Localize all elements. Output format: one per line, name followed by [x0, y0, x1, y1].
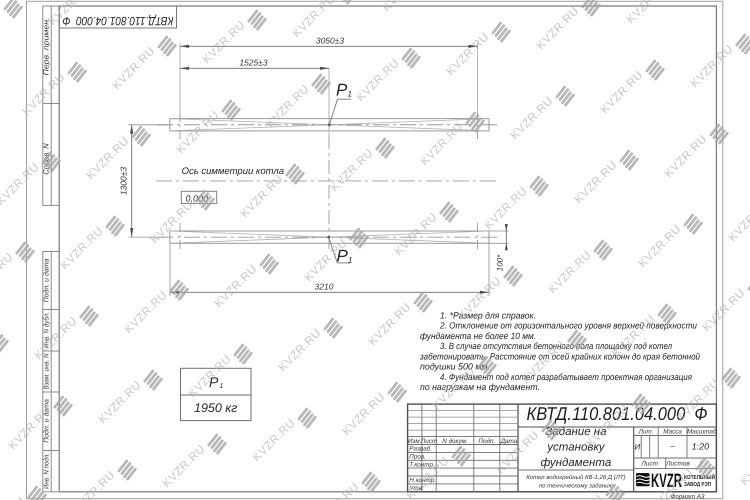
svg-text:KVZR.RU: KVZR.RU [637, 223, 684, 270]
svg-text:1: 1 [220, 383, 224, 390]
svg-text:И: И [635, 443, 641, 452]
svg-text:Масштаб: Масштаб [687, 428, 717, 435]
svg-text:фундамента: фундамента [541, 457, 612, 469]
svg-text:Изм.: Изм. [408, 438, 421, 445]
svg-text:KVZR.RU: KVZR.RU [547, 249, 594, 296]
svg-text:KVZR.RU: KVZR.RU [625, 0, 672, 26]
svg-text:по техническому заданию: по техническому заданию [539, 482, 614, 489]
svg-text:KVZR.RU: KVZR.RU [123, 289, 170, 336]
svg-text:KVZR.RU: KVZR.RU [175, 109, 222, 156]
svg-text:KVZR.RU: KVZR.RU [727, 197, 750, 244]
svg-text:KVZR.RU: KVZR.RU [21, 71, 68, 118]
svg-text:KVZR.RU: KVZR.RU [0, 251, 16, 298]
svg-text:4. Фундамент под котел разраб: 4. Фундамент под котел разрабатывает про… [440, 372, 692, 382]
svg-text:KVZR.RU: KVZR.RU [0, 161, 42, 208]
svg-text:KVZR.RU: KVZR.RU [71, 469, 118, 500]
svg-text:KVZR.RU: KVZR.RU [213, 263, 260, 310]
svg-text:3050±3: 3050±3 [316, 36, 345, 46]
svg-text:2. Отклонение от горизонтальн: 2. Отклонение от горизонтального уровня … [439, 321, 697, 331]
svg-text:Масса: Масса [663, 428, 682, 435]
svg-text:Дата: Дата [500, 438, 518, 445]
svg-text:KVZR.RU: KVZR.RU [509, 95, 556, 142]
svg-text:KVZR.RU: KVZR.RU [111, 45, 158, 92]
svg-text:KVZR.RU: KVZR.RU [187, 353, 234, 400]
svg-text:KVZR.RU: KVZR.RU [381, 0, 428, 14]
svg-text:KVZR.RU: KVZR.RU [701, 287, 748, 334]
svg-text:1: 1 [348, 90, 352, 99]
svg-text:KVZR.RU: KVZR.RU [33, 315, 80, 362]
svg-text:KVZR.RU: KVZR.RU [0, 495, 28, 500]
svg-text:KVZR.RU: KVZR.RU [315, 481, 362, 500]
svg-text:KVZR.RU: KVZR.RU [149, 199, 196, 246]
svg-text:KVZR.RU: KVZR.RU [355, 57, 402, 104]
svg-text:Разраб.: Разраб. [409, 446, 432, 453]
svg-text:Инв. N подл.: Инв. N подл. [42, 453, 50, 489]
svg-text:KVZR.RU: KVZR.RU [59, 225, 106, 272]
svg-text:–: – [669, 442, 675, 451]
svg-text:KVZR.RU: KVZR.RU [663, 133, 710, 180]
svg-text:KVZR.RU: KVZR.RU [445, 31, 492, 78]
svg-text:Лит.: Лит. [638, 428, 654, 435]
svg-text:Подп.: Подп. [478, 438, 495, 445]
svg-text:3210: 3210 [315, 282, 334, 292]
svg-text:по нагрузкам на фундамент.: по нагрузкам на фундамент. [420, 382, 540, 392]
svg-text:1950 кг: 1950 кг [194, 401, 237, 415]
svg-text:1: 1 [348, 255, 352, 264]
svg-text:KVZR.RU: KVZR.RU [689, 43, 736, 90]
svg-text:Лист: Лист [420, 438, 437, 445]
svg-text:P: P [336, 81, 348, 100]
svg-text:KVZR.RU: KVZR.RU [535, 5, 582, 52]
svg-text:N докум.: N докум. [442, 438, 467, 445]
svg-text:1. *Размер для справок.: 1. *Размер для справок. [440, 310, 536, 320]
svg-text:Перв. примен.: Перв. примен. [41, 18, 50, 76]
svg-text:KVZR.RU: KVZR.RU [573, 159, 620, 206]
svg-text:KVZR.RU: KVZR.RU [277, 327, 324, 374]
svg-text:100*: 100* [495, 254, 504, 271]
svg-text:КВТД.110.801.04.000 Ф: КВТД.110.801.04.000 Ф [62, 14, 173, 28]
svg-text:Подп. и дата: Подп. и дата [42, 258, 50, 302]
svg-text:1525±3: 1525±3 [239, 58, 268, 68]
svg-text:Лист: Лист [640, 461, 658, 468]
svg-text:KVZR.RU: KVZR.RU [251, 417, 298, 464]
svg-text:Ось симметрии котла: Ось симметрии котла [182, 166, 284, 177]
svg-text:KVZR.RU: KVZR.RU [599, 69, 646, 116]
svg-text:KVZR.RU: KVZR.RU [739, 441, 750, 488]
svg-text:KVZR.RU: KVZR.RU [0, 7, 4, 54]
svg-text:KVZR.RU: KVZR.RU [419, 121, 466, 168]
svg-text:KVZR.RU: KVZR.RU [161, 443, 208, 490]
svg-text:Котел водогрейный КВ-1,28 Д (Л: Котел водогрейный КВ-1,28 Д (ЛТ) [526, 474, 625, 481]
svg-text:KVZR.RU: KVZR.RU [367, 301, 414, 348]
svg-text:1:20: 1:20 [692, 442, 710, 452]
svg-text:KVZR.RU: KVZR.RU [341, 391, 388, 438]
svg-text:1300±3: 1300±3 [119, 167, 129, 196]
svg-text:KVZR.RU: KVZR.RU [329, 147, 376, 194]
svg-text:KVZR.RU: KVZR.RU [97, 379, 144, 426]
svg-text:Пров.: Пров. [409, 454, 426, 461]
svg-text:KVZR.RU: KVZR.RU [239, 173, 286, 220]
svg-text:фундамента не более 10 мм.: фундамента не более 10 мм. [420, 331, 536, 341]
